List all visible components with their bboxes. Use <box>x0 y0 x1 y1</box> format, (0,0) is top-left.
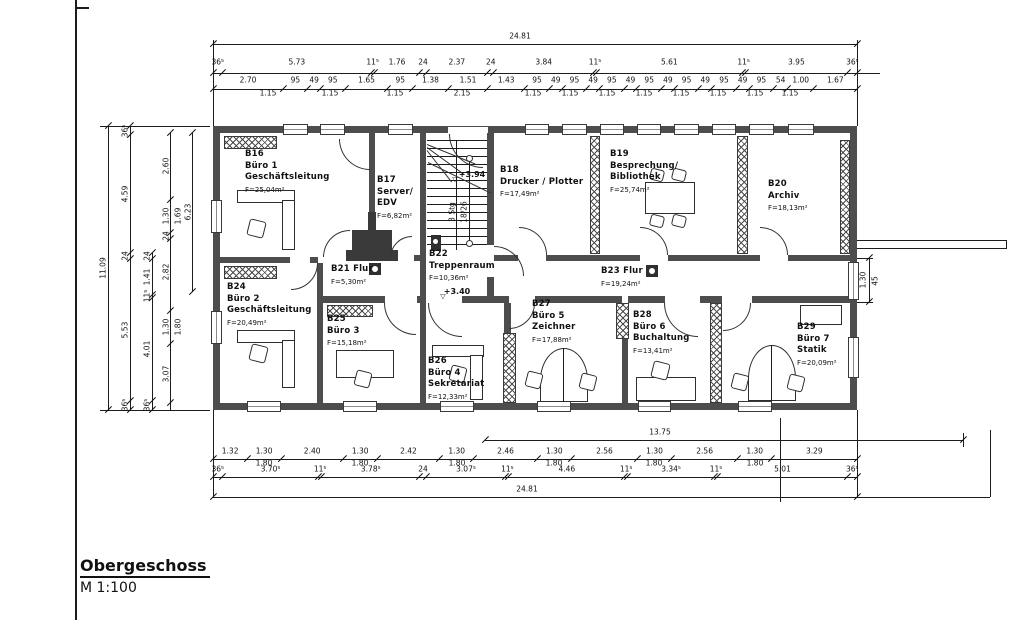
window <box>440 401 474 412</box>
extension-line <box>857 240 1007 241</box>
dim-label: 95 <box>328 76 338 84</box>
dim-label: 49 <box>663 76 673 84</box>
door-arc <box>390 236 412 258</box>
window <box>562 124 587 135</box>
door-arc <box>384 303 416 335</box>
room-label: Geschäftsleitung <box>227 306 312 315</box>
symbol-dot <box>433 239 438 244</box>
dim-label: 3.34⁵ <box>661 465 681 473</box>
dim-label: 24 <box>418 465 428 473</box>
dim-label: 1.80 <box>256 459 273 467</box>
stair-tread <box>427 188 456 189</box>
area-label: F=5,30m² <box>331 279 366 286</box>
dim-label: 1.80 <box>546 459 563 467</box>
chair <box>786 373 805 392</box>
room-label: B27 <box>532 300 551 309</box>
dim-label: 1.15 <box>525 89 542 97</box>
hatched-wall <box>503 333 516 403</box>
window <box>637 124 661 135</box>
door-arc <box>723 303 751 331</box>
room-label: Büro 6 <box>633 323 666 332</box>
dim-label: 45 <box>871 276 879 286</box>
room-label: EDV <box>377 199 397 208</box>
dim-label: 1.15 <box>387 89 404 97</box>
wall <box>220 257 290 263</box>
dim-label: 1.15 <box>747 89 764 97</box>
level-triangle-icon: ▽ <box>452 177 457 184</box>
dim-label: 95 <box>682 76 692 84</box>
window <box>674 124 699 135</box>
extension-line <box>857 302 873 303</box>
room-label: Sekretariat <box>428 380 484 389</box>
hatched-wall <box>616 303 629 339</box>
wall <box>668 255 760 261</box>
wall <box>487 133 494 245</box>
area-label: F=17,88m² <box>532 337 572 344</box>
window <box>525 124 549 135</box>
room-label: Treppenraum <box>429 262 495 271</box>
extension-line <box>990 430 991 497</box>
wall <box>414 255 420 261</box>
chair <box>671 213 687 228</box>
dim-label: 1.38 <box>422 76 439 84</box>
dim-label: 2.56 <box>696 447 713 455</box>
stair-tread <box>456 236 487 237</box>
plan-scale: M 1:100 <box>80 580 210 596</box>
symbol-dot <box>649 268 655 274</box>
room-label: Büro 2 <box>227 295 260 304</box>
window <box>712 124 736 135</box>
room-label: Statik <box>797 346 827 355</box>
area-label: F=20,09m² <box>797 360 837 367</box>
wall <box>462 296 509 303</box>
dimension-line <box>213 497 990 498</box>
room-label: B19 <box>610 150 629 159</box>
dim-label: 1.15 <box>322 89 339 97</box>
dim-label: 2.82 <box>162 264 170 281</box>
dim-label: 1.80 <box>174 319 182 336</box>
dimension-line <box>213 44 857 45</box>
dimension-line <box>152 253 153 410</box>
dimension-line <box>213 477 857 478</box>
room-label: B21 Flur <box>331 265 373 274</box>
dim-label: 49 <box>738 76 748 84</box>
dim-label: 49 <box>551 76 561 84</box>
wall <box>546 255 640 261</box>
dim-label: 13.75 <box>649 428 670 436</box>
room-label: Zeichner <box>532 323 576 332</box>
dim-label: 1.15 <box>673 89 690 97</box>
dim-label: 36⁵ <box>143 399 151 412</box>
room-label: Besprechung/ <box>610 162 678 171</box>
area-label: F=20,49m² <box>227 320 267 327</box>
hatched-wall <box>590 136 600 254</box>
window <box>600 124 624 135</box>
desk <box>636 377 696 401</box>
area-label: F=6,82m² <box>377 213 412 220</box>
extension-line <box>100 126 210 127</box>
dim-label: 49 <box>700 76 710 84</box>
chair <box>649 213 665 228</box>
dim-label: 54 <box>776 76 786 84</box>
door-arc <box>640 227 668 255</box>
dim-label: 49 <box>626 76 636 84</box>
dim-label: 4.01 <box>143 341 151 358</box>
dim-label: 1.69 <box>174 208 182 225</box>
window <box>211 200 222 233</box>
room-label: B16 <box>245 150 264 159</box>
room-label: Büro 3 <box>327 327 360 336</box>
extension-line <box>213 410 214 498</box>
window <box>638 401 671 412</box>
dim-label: 11⁵ <box>589 58 602 66</box>
dim-label: 11⁵ <box>501 465 514 473</box>
stair-tread <box>456 164 487 165</box>
dim-label: 1.43 <box>498 76 515 84</box>
plan-title: Obergeschoss <box>80 556 210 578</box>
desk <box>282 200 295 250</box>
dim-label: 1.41 <box>143 269 151 286</box>
dim-label: 95 <box>291 76 301 84</box>
window <box>749 124 774 135</box>
dim-label: 5.73 <box>288 58 305 66</box>
dim-label: 49 <box>309 76 319 84</box>
door-arc <box>760 227 788 255</box>
area-label: F=18,13m² <box>768 205 808 212</box>
dim-label: 1.30 <box>352 447 369 455</box>
window <box>388 124 413 135</box>
dim-label: 3.07 <box>162 366 170 383</box>
dim-label: 2.60 <box>162 158 170 175</box>
dimension-line <box>108 126 109 410</box>
door-opening <box>448 127 488 133</box>
stair-tread <box>456 180 487 181</box>
door-arc <box>339 139 370 170</box>
table <box>645 182 695 214</box>
window <box>283 124 308 135</box>
window <box>788 124 814 135</box>
dim-label: 95 <box>719 76 729 84</box>
room-label: B28 <box>633 311 652 320</box>
room-label: B26 <box>428 357 447 366</box>
dim-label: 49 <box>588 76 598 84</box>
dim-label: 2.40 <box>304 447 321 455</box>
dim-label: 4.59 <box>121 186 129 203</box>
room-label: B24 <box>227 283 246 292</box>
room-label: B29 <box>797 323 816 332</box>
dim-label: 1.15 <box>562 89 579 97</box>
extension-line <box>857 248 1007 249</box>
dim-label: 1.15 <box>710 89 727 97</box>
dim-label: 1.80 <box>747 459 764 467</box>
dimension-line <box>130 126 131 410</box>
extension-line <box>213 40 214 126</box>
area-label: F=10,36m² <box>429 275 469 282</box>
dim-label: 3.29 <box>806 447 823 455</box>
stair-tread <box>456 228 487 229</box>
hatched-wall <box>224 266 277 279</box>
dim-label: 1.30 <box>646 447 663 455</box>
chair <box>578 372 597 391</box>
room-label: B23 Flur <box>601 267 643 276</box>
extension-line <box>857 40 858 126</box>
window <box>211 311 222 344</box>
hatched-wall <box>710 303 722 403</box>
dim-label: 1.80 <box>646 459 663 467</box>
room-label: Büro 5 <box>532 312 565 321</box>
dim-label: 1.30 <box>546 447 563 455</box>
wall <box>420 133 426 403</box>
window <box>848 337 859 378</box>
dim-label: 2.70 <box>240 76 257 84</box>
wall <box>752 296 850 303</box>
level-label: +3.94 <box>459 171 485 179</box>
room-label: Geschäftsleitung <box>245 173 330 182</box>
area-label: F=19,24m² <box>601 281 641 288</box>
stair-tread <box>427 228 456 229</box>
room-label: Büro 1 <box>245 162 278 171</box>
room-label: B22 <box>429 250 448 259</box>
dim-label: 11⁵ <box>710 465 723 473</box>
room-label: Büro 4 <box>428 369 461 378</box>
door-arc <box>428 303 462 337</box>
dim-label: 3.95 <box>788 58 805 66</box>
dim-label: 1.67 <box>827 76 844 84</box>
dim-label: 5.53 <box>121 322 129 339</box>
stair-steps-label: 3 Stg <box>448 202 456 222</box>
dim-label: 11⁵ <box>314 465 327 473</box>
dim-label: 1.00 <box>792 76 809 84</box>
dim-label: 1.30 <box>448 447 465 455</box>
door-arc <box>519 227 547 255</box>
level-triangle-icon: ▽ <box>440 294 445 301</box>
chair <box>353 369 372 388</box>
room-label: B18 <box>500 166 519 175</box>
window <box>247 401 281 412</box>
dim-label: 1.30 <box>746 447 763 455</box>
window <box>537 401 571 412</box>
door-arc <box>664 303 698 337</box>
dim-label: 1.15 <box>260 89 277 97</box>
room-label: B17 <box>377 176 396 185</box>
dim-label: 1.76 <box>389 58 406 66</box>
stair-rise-label: 18/26 <box>460 201 468 223</box>
wall <box>317 263 323 403</box>
room-label: Bibliothek <box>610 173 661 182</box>
wall <box>628 296 665 303</box>
wall <box>622 337 628 403</box>
dim-label: 11⁵ <box>737 58 750 66</box>
table-divider <box>563 348 564 402</box>
page-edge-tick <box>75 7 89 9</box>
dim-label: 24 <box>418 58 428 66</box>
room-label: Archiv <box>768 192 800 201</box>
room-label: Server/ <box>377 188 413 197</box>
dim-label: 2.15 <box>454 89 471 97</box>
wall <box>700 296 722 303</box>
door-arc <box>323 230 350 257</box>
wall <box>317 296 385 303</box>
room-label: B20 <box>768 180 787 189</box>
hatched-wall <box>840 140 850 254</box>
dim-label: 1.30 <box>859 272 867 289</box>
area-label: F=25,04m² <box>245 187 285 194</box>
dim-label: 2.37 <box>449 58 466 66</box>
room-label: Drucker / Plotter <box>500 178 583 187</box>
stair-tread <box>427 196 456 197</box>
dim-label: 11⁵ <box>620 465 633 473</box>
wall <box>417 296 426 303</box>
dim-label: 1.32 <box>222 447 239 455</box>
stair-tread <box>456 148 487 149</box>
stair-arrow-circle <box>466 240 473 247</box>
dim-label: 5.01 <box>774 465 791 473</box>
dim-label: 36⁵ <box>846 58 859 66</box>
page-edge-line <box>75 0 77 620</box>
dim-label: 36⁵ <box>211 465 224 473</box>
chair <box>248 343 269 364</box>
hatched-wall <box>224 136 277 149</box>
chimney <box>368 212 376 232</box>
area-label: F=17,49m² <box>500 191 540 198</box>
dimension-line <box>213 73 880 74</box>
area-label: F=25,74m² <box>610 187 650 194</box>
room-label: Buchaltung <box>633 334 690 343</box>
extension-line <box>100 410 210 411</box>
dim-label: 24.81 <box>516 485 537 493</box>
dim-label: 2.42 <box>400 447 417 455</box>
dim-label: 3.84 <box>535 58 552 66</box>
wall <box>213 126 220 410</box>
dim-label: 1.15 <box>599 89 616 97</box>
floor-plan: 36⁵5.7311⁵1.76242.37243.8411⁵5.6111⁵3.95… <box>0 0 1024 620</box>
dim-label: 36⁵ <box>121 399 129 412</box>
dim-label: 95 <box>396 76 406 84</box>
dim-label: 95 <box>570 76 580 84</box>
dim-label: 11⁵ <box>366 58 379 66</box>
dim-label: 1.80 <box>449 459 466 467</box>
dim-label: 1.30 <box>162 319 170 336</box>
dim-label: 1.15 <box>636 89 653 97</box>
dim-label: 2.46 <box>497 447 514 455</box>
dim-label: 1.15 <box>782 89 799 97</box>
dim-label: 1.30 <box>256 447 273 455</box>
dim-label: 11.09 <box>99 257 107 278</box>
extension-line <box>857 258 873 259</box>
dim-label: 24.81 <box>509 32 530 40</box>
dim-label: 95 <box>532 76 542 84</box>
dim-label: 95 <box>757 76 767 84</box>
extension-line <box>1006 240 1007 249</box>
dimension-line <box>485 440 963 441</box>
drafting-table <box>748 345 796 401</box>
room-label: Büro 7 <box>797 335 830 344</box>
dim-label: 95 <box>644 76 654 84</box>
chair <box>730 372 749 391</box>
title-block: Obergeschoss M 1:100 <box>80 556 210 596</box>
dim-label: 2.56 <box>596 447 613 455</box>
stair-tread <box>456 196 487 197</box>
dim-label: 5.61 <box>661 58 678 66</box>
tick <box>188 288 195 295</box>
window <box>738 401 772 412</box>
door-arc <box>291 263 318 290</box>
extension-line <box>857 410 858 498</box>
dim-label: 1.65 <box>358 76 375 84</box>
window <box>320 124 345 135</box>
room-label: B25 <box>327 315 346 324</box>
stair-tread <box>427 140 456 141</box>
desk <box>282 340 295 388</box>
chair <box>246 218 267 239</box>
wall <box>788 255 850 261</box>
dim-label: 24 <box>486 58 496 66</box>
area-label: F=13,41m² <box>633 348 673 355</box>
table-divider <box>771 345 772 401</box>
dim-label: 36⁵ <box>846 465 859 473</box>
area-label: F=15,18m² <box>327 340 367 347</box>
dim-label: 1.51 <box>460 76 477 84</box>
area-label: F=12,33m² <box>428 394 468 401</box>
extension-line <box>780 418 781 502</box>
desk <box>470 355 483 400</box>
hatched-wall <box>737 136 748 254</box>
dim-label: 95 <box>607 76 617 84</box>
stair-tread <box>456 140 487 141</box>
dim-label: 1.80 <box>352 459 369 467</box>
dim-label: 6.23 <box>184 204 192 221</box>
dim-label: 36⁵ <box>211 58 224 66</box>
dim-label: 1.30 <box>162 208 170 225</box>
level-label: +3.40 <box>444 288 470 296</box>
window <box>343 401 377 412</box>
